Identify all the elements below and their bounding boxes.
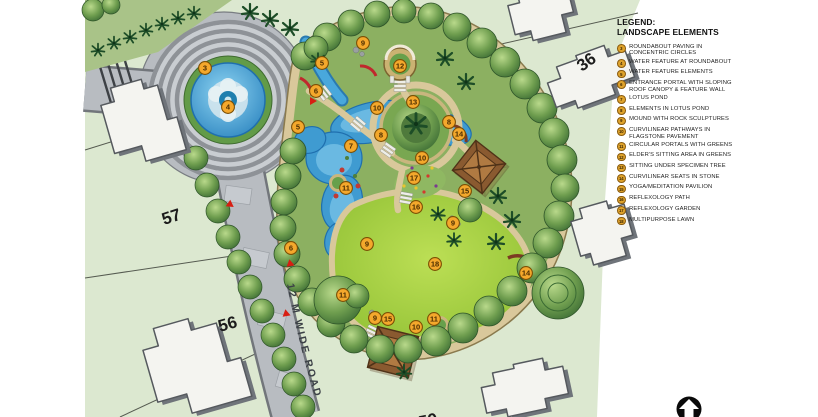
marker-12[interactable]: 12 xyxy=(394,60,407,73)
legend-item: 8ELEMENTS IN LOTUS POND xyxy=(617,106,767,115)
legend-item-label: ENTRANCE PORTAL WITH SLOPING ROOF CANOPY… xyxy=(629,80,741,93)
legend-item-number: 5 xyxy=(617,70,626,79)
marker-11c[interactable]: 11 xyxy=(428,313,441,326)
svg-text:9: 9 xyxy=(451,219,455,228)
legend-item: 13SITTING UNDER SPECIMEN TREE xyxy=(617,163,767,172)
legend-item-number: 15 xyxy=(617,185,626,194)
legend-item-label: MOUND WITH ROCK SCULPTURES xyxy=(629,116,741,123)
legend-item-label: CURVILINEAR SEATS IN STONE xyxy=(629,174,741,181)
svg-text:9: 9 xyxy=(373,314,377,323)
svg-text:7: 7 xyxy=(349,142,353,151)
legend-item: 11CIRCULAR PORTALS WITH GREENS xyxy=(617,142,767,151)
site-plan-page: 12 M WIDE ROAD 36 57 56 59 3 4 5 6 5 9 1… xyxy=(0,0,818,417)
legend-item-number: 13 xyxy=(617,164,626,173)
svg-text:15: 15 xyxy=(461,187,469,196)
svg-text:6: 6 xyxy=(314,87,318,96)
marker-7[interactable]: 7 xyxy=(345,140,358,153)
legend-item: 3ROUNDABOUT PAVING IN CONCENTRIC CIRCLES xyxy=(617,44,767,57)
developer-logo xyxy=(677,397,702,417)
marker-13[interactable]: 13 xyxy=(407,96,420,109)
svg-text:12: 12 xyxy=(396,62,404,71)
svg-text:5: 5 xyxy=(296,123,300,132)
marker-15a[interactable]: 15 xyxy=(459,185,472,198)
legend-item: 6ENTRANCE PORTAL WITH SLOPING ROOF CANOP… xyxy=(617,80,767,93)
legend-item-label: ELDER'S SITTING AREA IN GREENS xyxy=(629,152,741,159)
marker-9a[interactable]: 9 xyxy=(357,37,370,50)
svg-text:16: 16 xyxy=(412,203,420,212)
legend-item: 17REFLEXOLOGY GARDEN xyxy=(617,206,767,215)
legend-item: 10CURVILINEAR PATHWAYS IN FLAGSTONE PAVE… xyxy=(617,127,767,140)
legend-item: 16REFLEXOLOGY PATH xyxy=(617,195,767,204)
legend-item-number: 7 xyxy=(617,95,626,104)
svg-text:10: 10 xyxy=(412,323,420,332)
marker-4[interactable]: 4 xyxy=(222,101,235,114)
svg-text:3: 3 xyxy=(203,64,207,73)
legend-item: 15YOGA/MEDITATION PAVILION xyxy=(617,184,767,193)
legend-item-number: 4 xyxy=(617,59,626,68)
marker-6b[interactable]: 6 xyxy=(285,242,298,255)
legend-item-label: CIRCULAR PORTALS WITH GREENS xyxy=(629,142,741,149)
legend-item-number: 8 xyxy=(617,106,626,115)
svg-text:18: 18 xyxy=(431,260,439,269)
svg-text:11: 11 xyxy=(342,184,350,193)
marker-18[interactable]: 18 xyxy=(429,258,442,271)
legend-item: 9MOUND WITH ROCK SCULPTURES xyxy=(617,116,767,125)
marker-10a[interactable]: 10 xyxy=(371,102,384,115)
svg-text:15: 15 xyxy=(384,315,392,324)
marker-5b[interactable]: 5 xyxy=(292,121,305,134)
marker-11a[interactable]: 11 xyxy=(340,182,353,195)
legend-item: 12ELDER'S SITTING AREA IN GREENS xyxy=(617,152,767,161)
legend-item-number: 16 xyxy=(617,196,626,205)
marker-10b[interactable]: 10 xyxy=(416,152,429,165)
marker-17[interactable]: 17 xyxy=(408,172,421,185)
legend-item: 5WATER FEATURE ELEMENTS xyxy=(617,69,767,78)
marker-15b[interactable]: 15 xyxy=(382,313,395,326)
marker-14a[interactable]: 14 xyxy=(453,128,466,141)
legend-item-label: CURVILINEAR PATHWAYS IN FLAGSTONE PAVEME… xyxy=(629,127,741,140)
marker-14b[interactable]: 14 xyxy=(520,267,533,280)
legend-item-number: 18 xyxy=(617,217,626,226)
svg-text:13: 13 xyxy=(409,98,417,107)
svg-text:11: 11 xyxy=(430,315,438,324)
svg-text:11: 11 xyxy=(339,291,347,300)
svg-text:14: 14 xyxy=(455,130,464,139)
legend-item-number: 3 xyxy=(617,44,626,53)
marker-5a[interactable]: 5 xyxy=(316,57,329,70)
legend-item-number: 10 xyxy=(617,127,626,136)
legend-item-number: 14 xyxy=(617,174,626,183)
legend-item-label: LOTUS POND xyxy=(629,95,741,102)
marker-9d[interactable]: 9 xyxy=(369,312,382,325)
svg-text:17: 17 xyxy=(410,174,418,183)
legend-item-label: WATER FEATURE ELEMENTS xyxy=(629,69,741,76)
svg-text:9: 9 xyxy=(365,240,369,249)
legend-item-number: 12 xyxy=(617,153,626,162)
legend-item-label: ELEMENTS IN LOTUS POND xyxy=(629,106,741,113)
legend-item-label: WATER FEATURE AT ROUNDABOUT xyxy=(629,59,741,66)
legend-item-label: SITTING UNDER SPECIMEN TREE xyxy=(629,163,741,170)
svg-text:8: 8 xyxy=(379,131,383,140)
marker-8b[interactable]: 8 xyxy=(443,116,456,129)
legend-item-label: REFLEXOLOGY PATH xyxy=(629,195,741,202)
svg-text:6: 6 xyxy=(289,244,293,253)
svg-text:10: 10 xyxy=(418,154,426,163)
legend-item-label: YOGA/MEDITATION PAVILION xyxy=(629,184,741,191)
legend-subtitle: LANDSCAPE ELEMENTS xyxy=(617,28,767,38)
legend-item-label: MULTIPURPOSE LAWN xyxy=(629,217,741,224)
marker-9b[interactable]: 9 xyxy=(447,217,460,230)
marker-8a[interactable]: 8 xyxy=(375,129,388,142)
legend: LEGEND: LANDSCAPE ELEMENTS 3ROUNDABOUT P… xyxy=(617,18,767,227)
legend-item-number: 11 xyxy=(617,142,626,151)
legend-item: 14CURVILINEAR SEATS IN STONE xyxy=(617,174,767,183)
legend-item: 7LOTUS POND xyxy=(617,95,767,104)
legend-item-number: 6 xyxy=(617,80,626,89)
legend-item: 18MULTIPURPOSE LAWN xyxy=(617,217,767,226)
svg-text:5: 5 xyxy=(320,59,324,68)
legend-item-number: 9 xyxy=(617,117,626,126)
legend-item-label: ROUNDABOUT PAVING IN CONCENTRIC CIRCLES xyxy=(629,44,741,57)
legend-item-number: 17 xyxy=(617,206,626,215)
marker-10c[interactable]: 10 xyxy=(410,321,423,334)
svg-text:10: 10 xyxy=(373,104,381,113)
marker-9c[interactable]: 9 xyxy=(361,238,374,251)
marker-3[interactable]: 3 xyxy=(199,62,212,75)
svg-text:8: 8 xyxy=(447,118,451,127)
marker-6a[interactable]: 6 xyxy=(310,85,323,98)
legend-item: 4WATER FEATURE AT ROUNDABOUT xyxy=(617,59,767,68)
legend-items: 3ROUNDABOUT PAVING IN CONCENTRIC CIRCLES… xyxy=(617,44,767,226)
legend-item-label: REFLEXOLOGY GARDEN xyxy=(629,206,741,213)
svg-text:14: 14 xyxy=(522,269,531,278)
marker-16[interactable]: 16 xyxy=(410,201,423,214)
marker-11b[interactable]: 11 xyxy=(337,289,350,302)
svg-text:9: 9 xyxy=(361,39,365,48)
